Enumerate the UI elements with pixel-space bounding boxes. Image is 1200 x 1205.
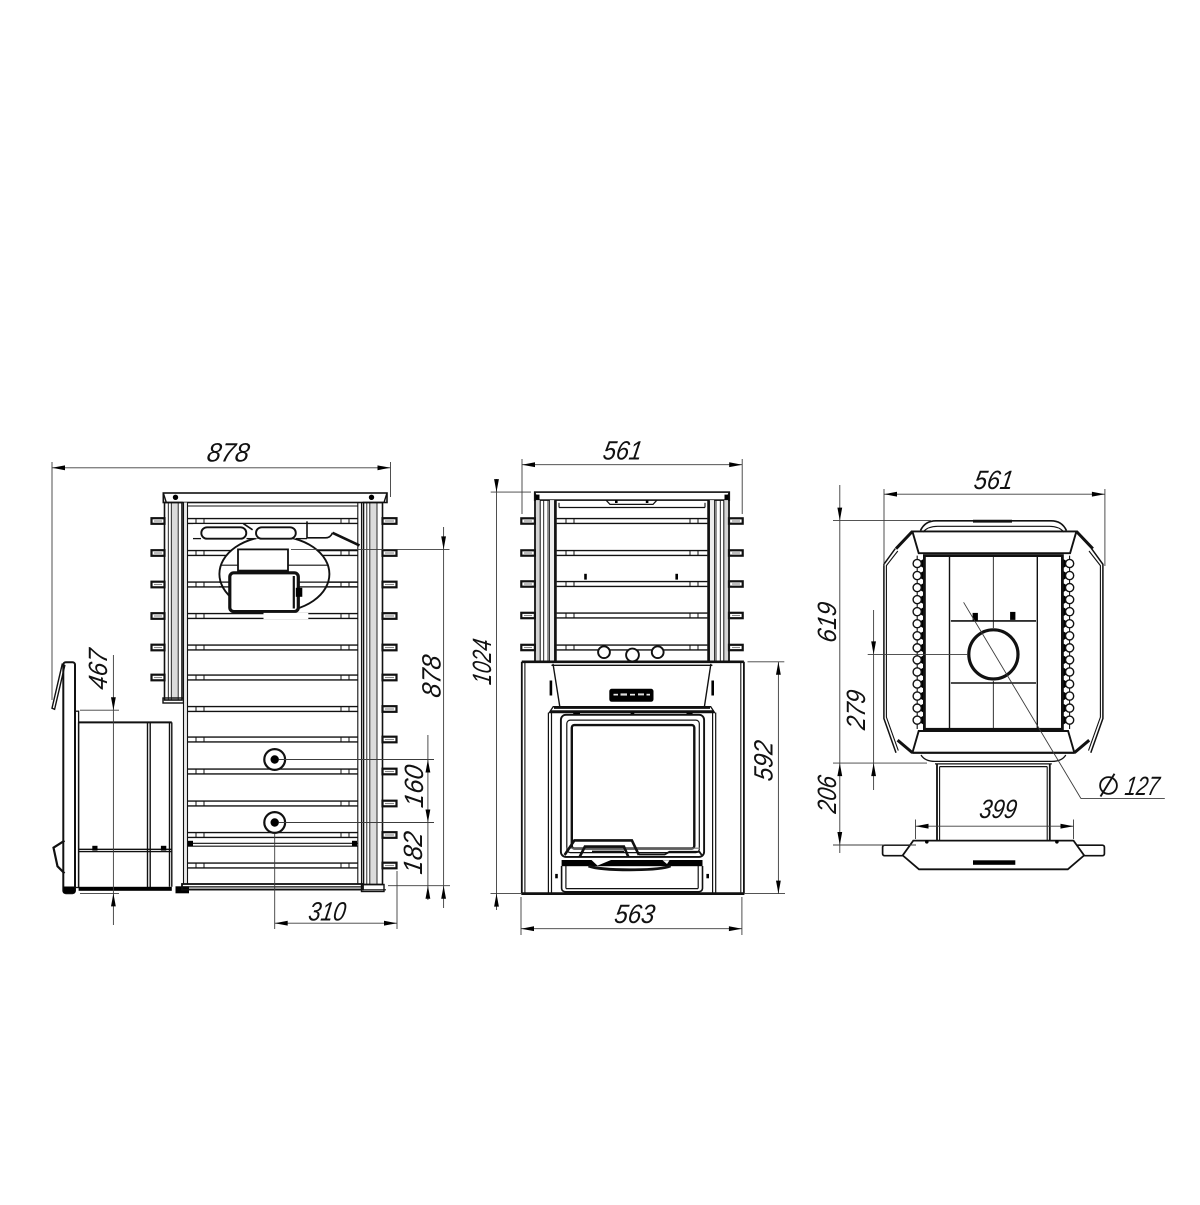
svg-text:127: 127 (1123, 771, 1163, 801)
svg-text:561: 561 (972, 465, 1016, 495)
svg-text:592: 592 (749, 738, 779, 783)
svg-text:467: 467 (83, 646, 113, 692)
svg-text:206: 206 (812, 773, 842, 816)
svg-text:878: 878 (417, 653, 447, 700)
svg-text:279: 279 (841, 688, 871, 733)
svg-text:619: 619 (812, 600, 842, 645)
svg-text:561: 561 (601, 436, 645, 466)
svg-text:310: 310 (307, 897, 349, 927)
svg-text:1024: 1024 (467, 637, 497, 687)
svg-text:399: 399 (978, 794, 1020, 824)
svg-text:160: 160 (399, 763, 429, 810)
svg-text:563: 563 (613, 899, 658, 929)
svg-text:878: 878 (205, 438, 252, 468)
svg-text:182: 182 (398, 829, 428, 876)
